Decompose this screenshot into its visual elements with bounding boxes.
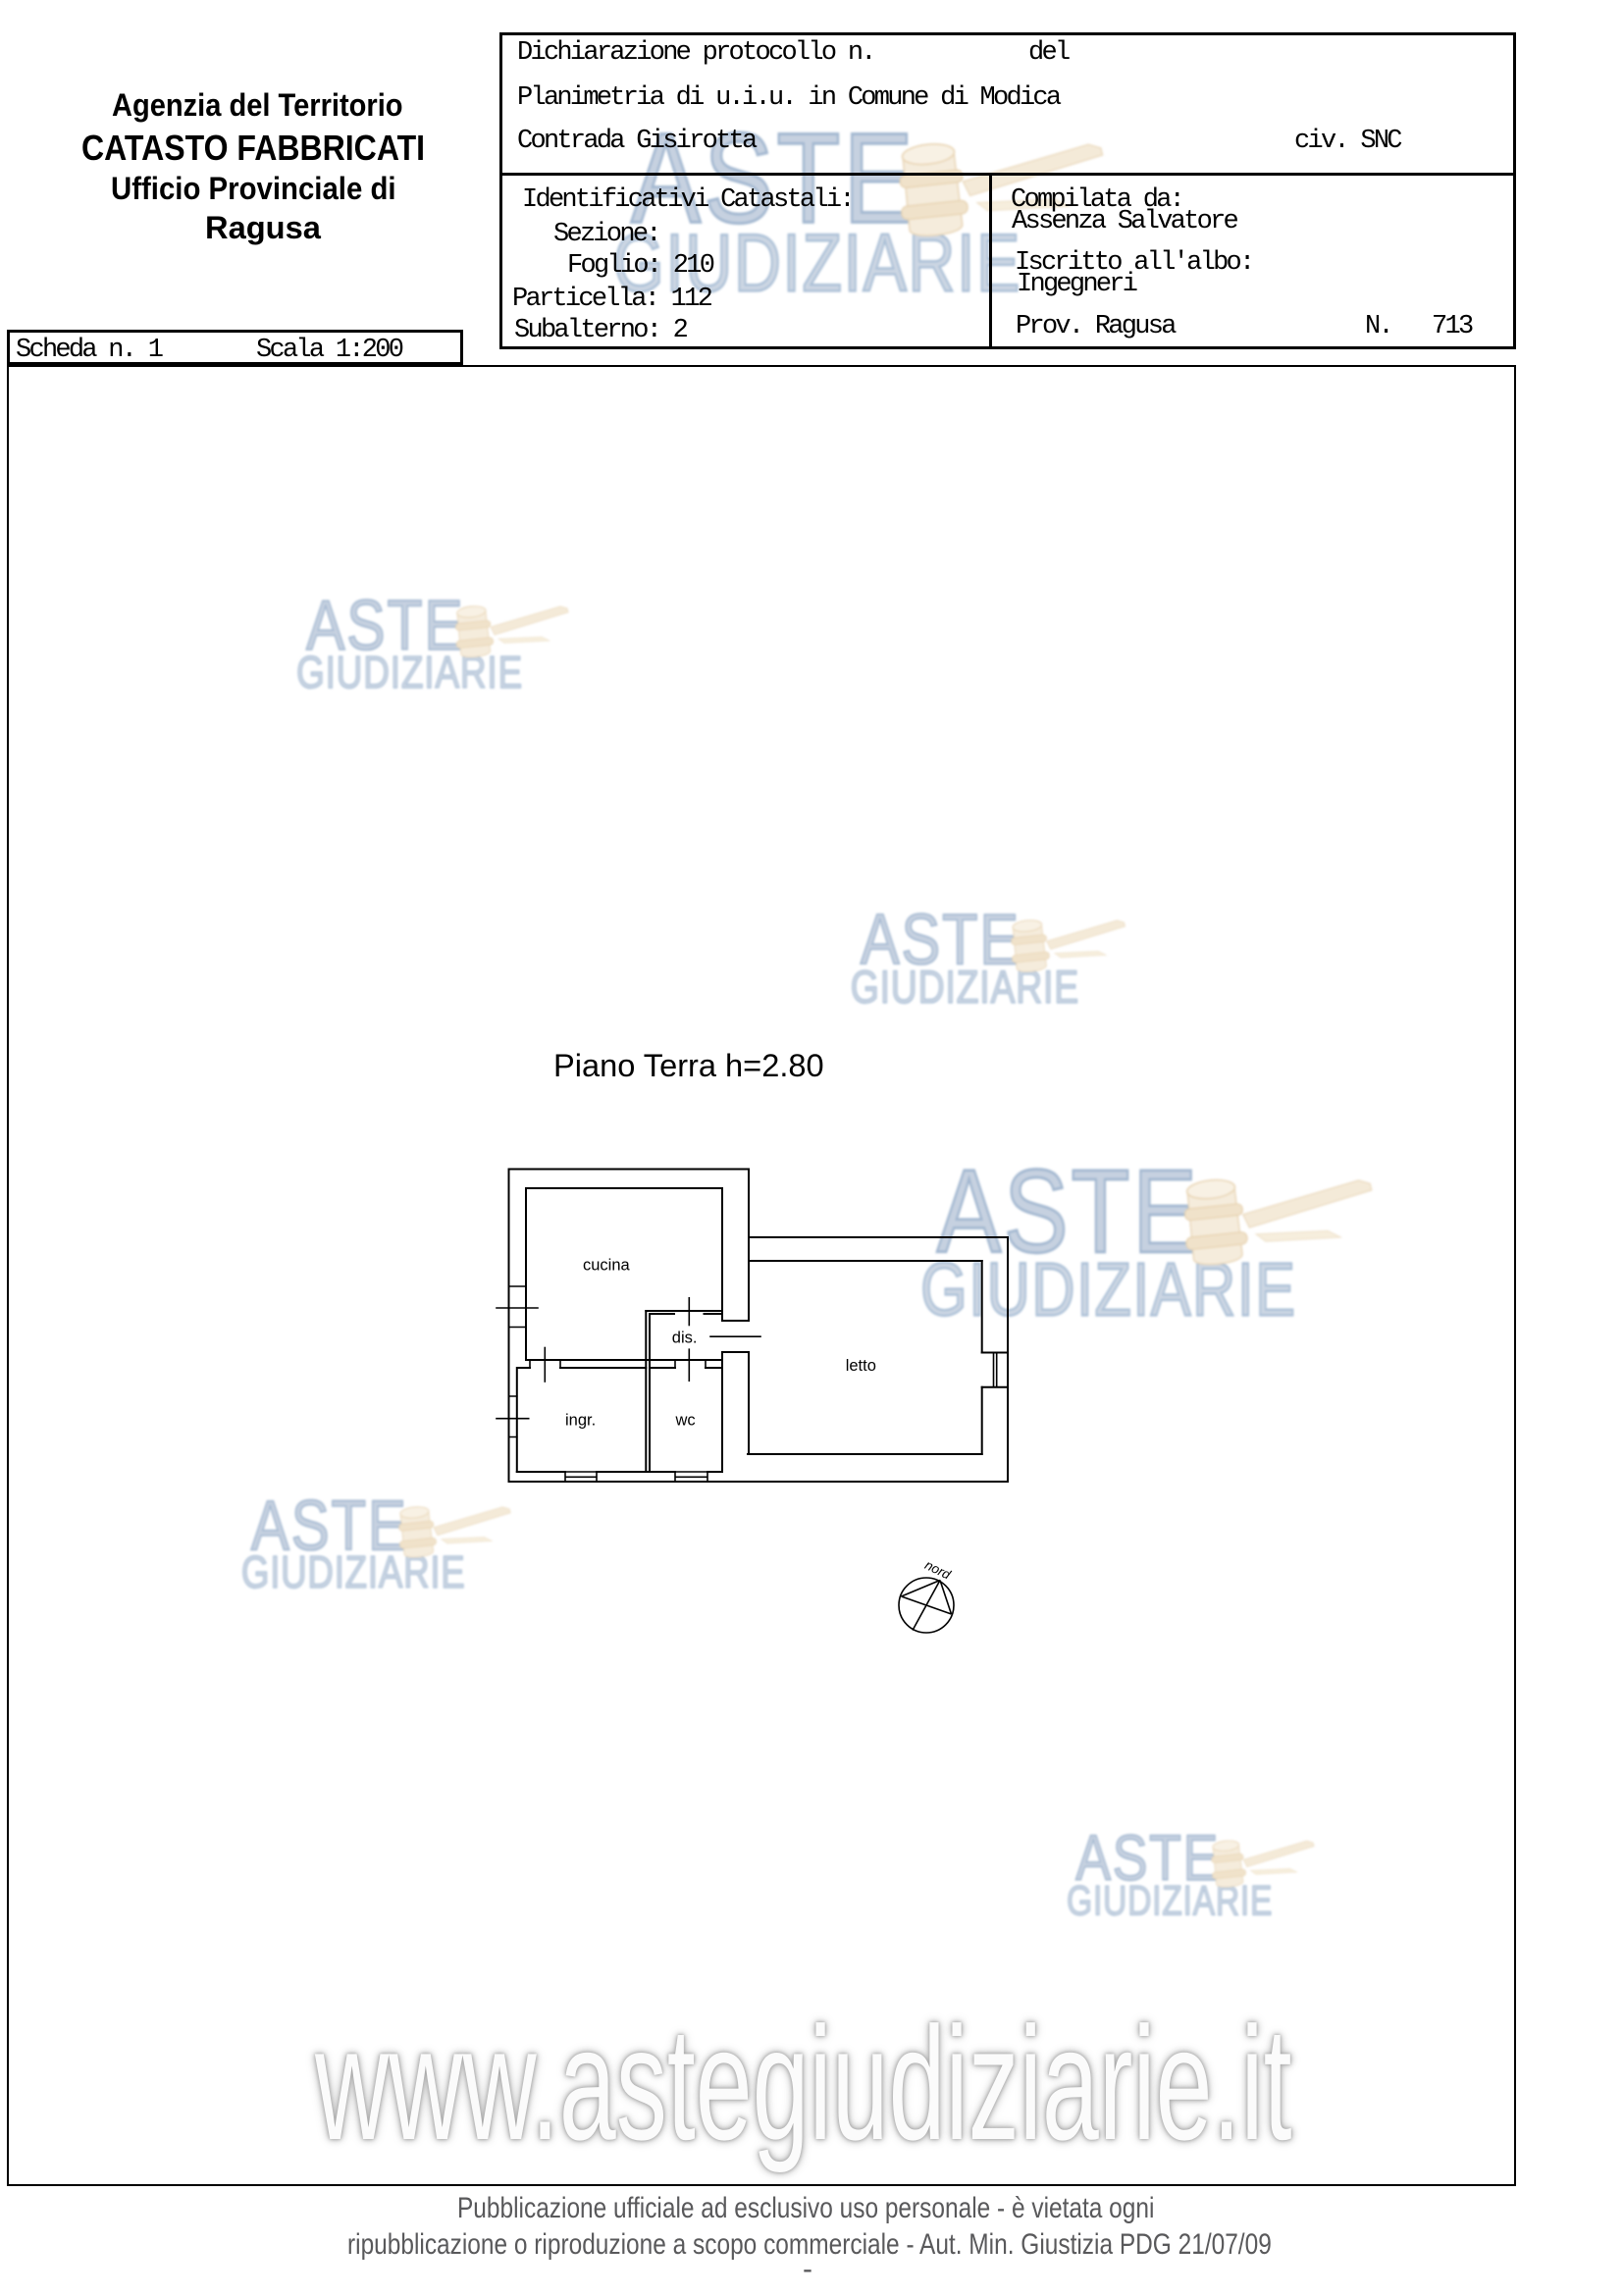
svg-text:ingr.: ingr.	[565, 1411, 596, 1429]
svg-text:wc: wc	[675, 1411, 696, 1429]
svg-text:cucina: cucina	[583, 1256, 631, 1274]
svg-text:nord: nord	[922, 1557, 953, 1583]
svg-text:letto: letto	[846, 1357, 876, 1375]
svg-text:dis.: dis.	[672, 1329, 698, 1346]
